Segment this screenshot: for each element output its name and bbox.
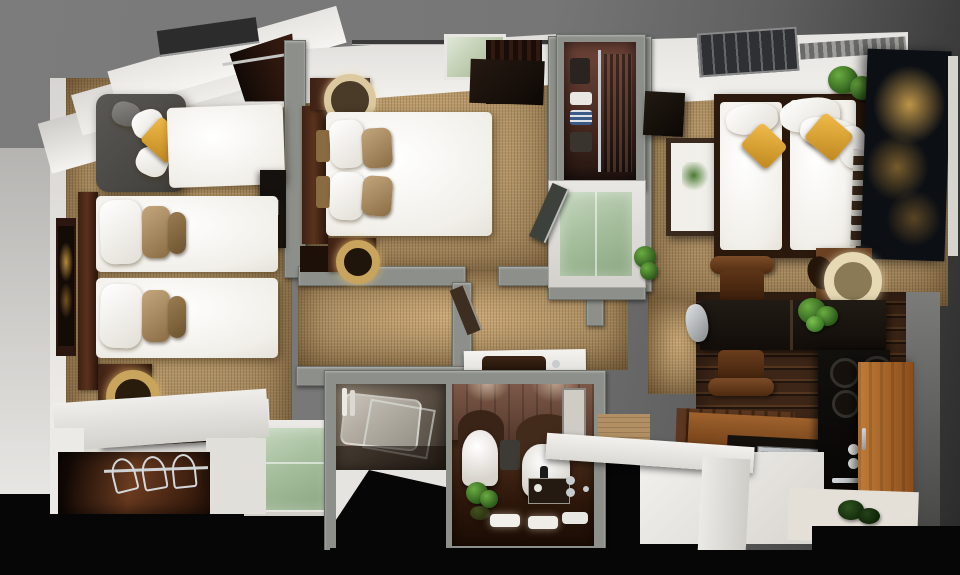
middle-bed-pillow-white-1 [328, 119, 365, 169]
towel-roll-1 [490, 514, 520, 527]
wardrobe-rail-icon [598, 50, 601, 172]
towel-roll-2 [528, 516, 558, 529]
wood-chair-1-seat [720, 270, 764, 302]
bed1-pillow-tan-small [168, 212, 186, 254]
bed2-pillow-tan [142, 290, 170, 342]
wall-speaker [643, 91, 685, 137]
bathroom-plant-reflection [470, 506, 490, 520]
burner-icon-1 [830, 358, 860, 388]
tub-room-dark-floor [336, 446, 446, 470]
dark-corner-middle-room [300, 246, 328, 272]
void-bottom-center [330, 548, 610, 575]
middle-bed-pillow-white-2 [329, 171, 365, 221]
burner-icon-3 [832, 390, 860, 418]
toilet [462, 430, 498, 486]
wood-chair-2 [708, 378, 774, 396]
headboard-panel-left-room [78, 192, 98, 390]
clothes-stack-white [570, 92, 592, 105]
towel-rail-icon-1 [342, 388, 347, 416]
wall-sliver-right-of-art [948, 56, 958, 256]
hanging-garments [604, 54, 632, 172]
clothes-stack-dark-1 [570, 58, 590, 84]
tray-item-white [534, 484, 542, 492]
wood-chair-2-seat [718, 350, 764, 380]
kitchen-floor-plant-2 [858, 508, 880, 524]
black-desk [700, 300, 886, 350]
vanity-faucet-icon [552, 360, 560, 368]
desk-plant-3 [806, 316, 824, 332]
headboard-cushion-gold-2 [316, 176, 330, 208]
floorplan-render [0, 0, 960, 575]
kitchen-parapet-column [697, 457, 750, 557]
bed2-pillow-white [99, 283, 143, 348]
middle-bed-pillow-tan-2 [361, 175, 394, 217]
cabinet-handle-icon [862, 428, 866, 450]
cistern-box [500, 440, 520, 470]
towel-rail-icon-2 [350, 390, 355, 416]
platform-white-column [206, 438, 266, 514]
glass-pair-icon-1 [566, 476, 575, 485]
wall-mirror-toilet-room [562, 388, 586, 438]
bed2-pillow-tan-small [168, 296, 186, 338]
city-photo-artwork [860, 49, 951, 262]
botanical-print [682, 162, 708, 192]
skylight-window-right-icon [697, 27, 800, 78]
clothes-stack-dark-2 [570, 132, 592, 152]
glass-pair-icon-2 [566, 488, 575, 497]
bed1-pillow-tan [142, 206, 170, 258]
vanity-tray [528, 478, 570, 504]
wall-artwork-gold [58, 226, 74, 346]
media-slab-middle [469, 59, 544, 106]
headboard-middle-room [302, 106, 328, 244]
clothes-stack-blue [570, 110, 592, 125]
bed1-pillow-white [99, 199, 143, 264]
shower-glass-seam [595, 192, 597, 276]
gold-lamp-middle-room [336, 240, 380, 284]
middle-bed-pillow-tan-1 [361, 127, 393, 169]
plant-by-shower-2 [640, 262, 658, 280]
desk-seam [790, 300, 793, 350]
headboard-cushion-gold-1 [316, 130, 330, 162]
void-bottom-right [812, 526, 960, 566]
bathroom-door-handle-icon [583, 486, 589, 492]
